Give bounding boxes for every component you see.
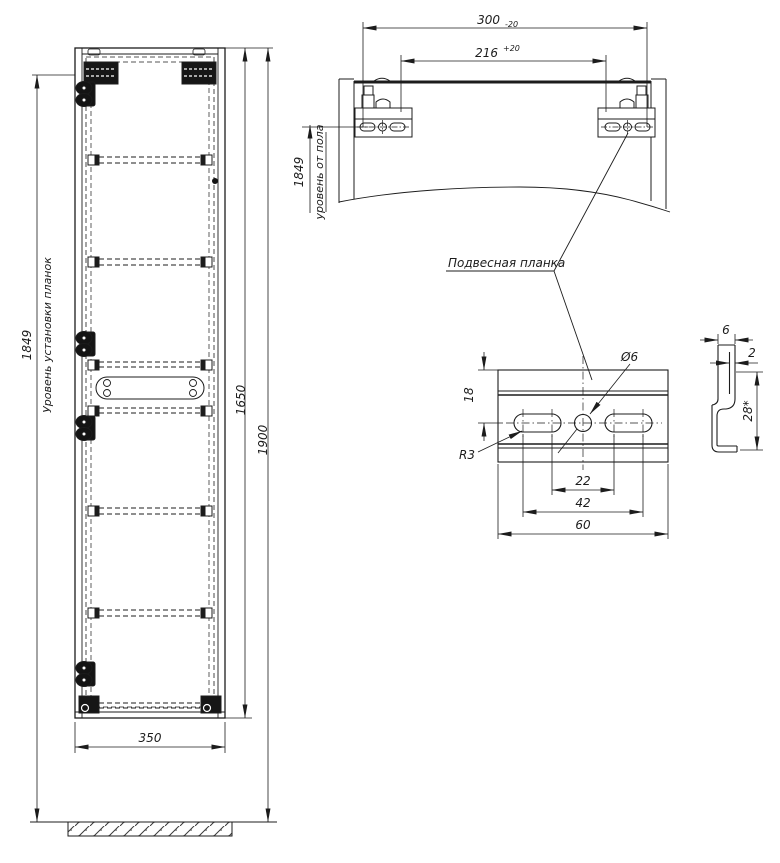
dim-inner-span: 216: [475, 46, 498, 60]
shelf-row-2: [88, 257, 212, 267]
dim-strip-level-label: Уровень установки планок: [41, 257, 54, 413]
mid-rail-upper: [88, 360, 212, 370]
top-view-dimensions: [302, 22, 647, 380]
shelf-row-3: [88, 506, 212, 516]
dim-side-height: 28*: [741, 400, 755, 421]
dim-inner-span-tolerance: +20: [503, 44, 520, 53]
corner-foot-left: [79, 696, 99, 713]
bottom-panel-row: [88, 700, 212, 710]
door-catch-dot: [212, 178, 218, 184]
dim-floor-level-label: уровень от пола: [313, 124, 326, 220]
dim-strip-width: 60: [575, 518, 591, 532]
technical-drawing-canvas: 1849 Уровень установки планок 1650 1900 …: [0, 0, 780, 863]
corner-foot-right: [201, 696, 221, 713]
center-lines: [506, 356, 662, 470]
dim-hook-depth: 6: [722, 323, 730, 337]
shelf-row-1: [88, 155, 212, 165]
dim-cabinet-height: 1650: [234, 384, 248, 415]
dim-slot-radius: R3: [459, 448, 475, 462]
hinge-mid-upper: [76, 332, 95, 357]
dim-slot-outer-span: 42: [575, 496, 590, 510]
hanging-bracket-right: [182, 62, 216, 84]
floor-hatch: [68, 822, 232, 836]
mid-rail-lower: [88, 406, 212, 416]
hanging-strip-callout: Подвесная планка: [448, 256, 565, 270]
cabinet-mounting-drawing: 1849 Уровень установки планок 1650 1900 …: [0, 0, 780, 863]
top-section-view: [339, 78, 670, 212]
dim-outer-span: 300: [477, 13, 500, 27]
break-line: [339, 187, 670, 212]
strip-detail-side: [712, 345, 737, 452]
cabinet-front-view: [75, 48, 225, 718]
strip-detail-dimensions: [478, 352, 668, 539]
hanging-strip-right: [598, 86, 655, 137]
dim-slot-inner-span: 22: [575, 474, 590, 488]
hinge-bottom: [76, 662, 95, 687]
dim-top-height: 1900: [256, 424, 270, 455]
dim-width: 350: [139, 731, 162, 745]
dim-strip-level-value: 1849: [20, 330, 34, 361]
dim-hole-diameter: Ø6: [620, 350, 638, 364]
dim-floor-level-value: 1849: [292, 157, 306, 188]
hanging-bracket-left: [84, 62, 118, 84]
hinge-top: [76, 82, 95, 107]
dim-edge-to-holes: 18: [462, 387, 476, 403]
shelf-row-4: [88, 608, 212, 618]
dim-thickness: 2: [748, 346, 756, 360]
hanging-strip-left: [355, 86, 412, 137]
strip-detail-front: [498, 356, 668, 470]
dim-outer-span-tolerance: -20: [505, 20, 518, 29]
drawer-mechanism: [96, 377, 204, 399]
hinge-mid-lower: [76, 416, 95, 441]
